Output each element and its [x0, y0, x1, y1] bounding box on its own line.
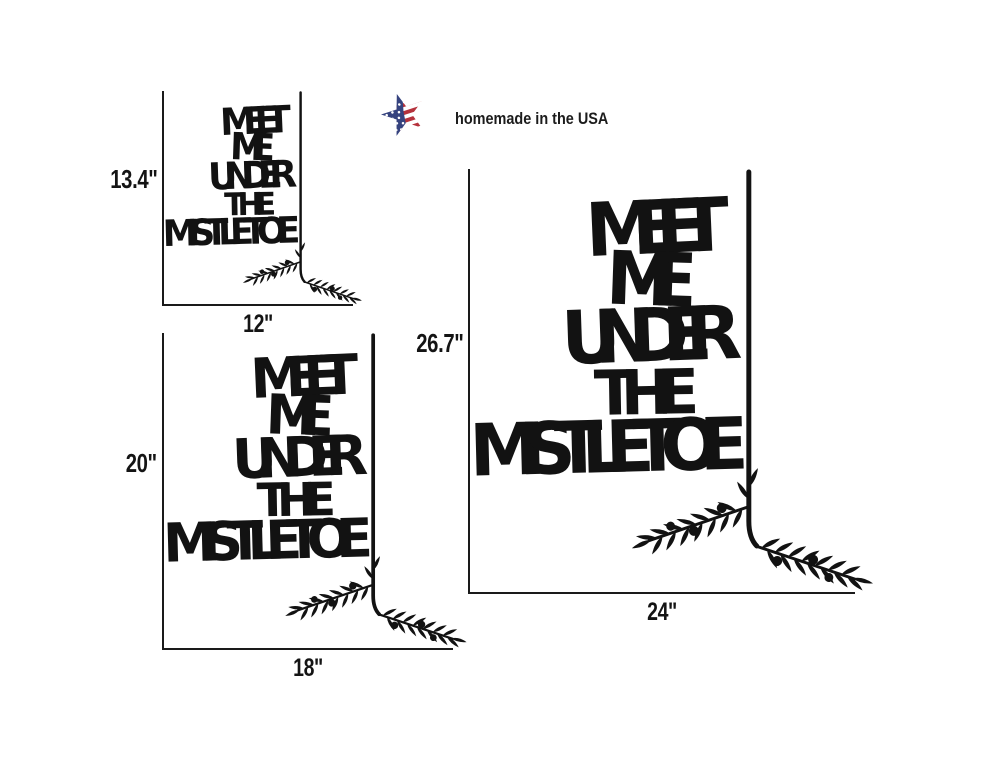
olive-branch-upper-sprig [240, 256, 303, 289]
mistletoe-sign-artwork: MEET ME UNDER THE MISTLETOE [468, 169, 855, 594]
mistletoe-sign-artwork: MEET ME UNDER THE MISTLETOE [162, 333, 453, 650]
sign-text-line: MISTLETOE [468, 401, 749, 493]
usa-flag-star-icon [381, 92, 426, 137]
made-in-usa-badge: homemade in the USA [381, 92, 635, 137]
height-label: 26.7" [416, 330, 463, 356]
olive-branch-upper-sprig [280, 576, 376, 624]
width-label: 18" [293, 656, 323, 681]
olive-branch-lower-sprig [750, 520, 878, 612]
size-variant-small: 13.4" 12" MEET ME UNDER THE MISTLETOE [162, 91, 353, 306]
sign-text-line: MISTLETOE [162, 506, 373, 574]
mistletoe-sign-artwork: MEET ME UNDER THE MISTLETOE [162, 91, 353, 306]
size-variant-large: 26.7" 24" MEET ME UNDER THE MISTLETOE [468, 169, 855, 594]
olive-branch-lower-sprig [374, 595, 470, 664]
made-in-usa-label: homemade in the USA [455, 109, 608, 129]
height-label: 20" [126, 450, 157, 476]
olive-branch-lower-sprig [301, 268, 364, 315]
branch-stem [373, 335, 379, 614]
sign-text-line: MISTLETOE [162, 210, 301, 255]
olive-branch-upper-sprig [626, 494, 754, 559]
height-label: 13.4" [110, 166, 157, 192]
size-variant-medium: 20" 18" MEET ME UNDER THE MISTLETOE [162, 333, 453, 650]
branch-stem [749, 172, 757, 546]
product-size-diagram-canvas: homemade in the USA 13.4" 12" MEET ME UN… [0, 0, 990, 765]
branch-stem [301, 93, 305, 282]
width-label: 24" [647, 600, 677, 625]
